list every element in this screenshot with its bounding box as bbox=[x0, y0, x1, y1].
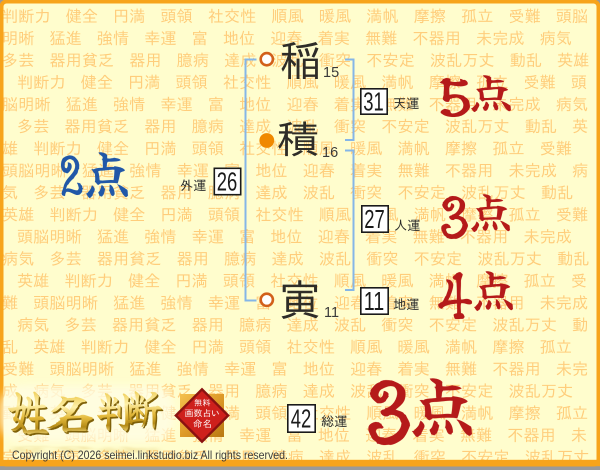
svg-text:27: 27 bbox=[364, 206, 385, 234]
svg-text:42: 42 bbox=[291, 406, 312, 434]
svg-text:26: 26 bbox=[217, 169, 238, 197]
svg-text:15: 15 bbox=[323, 65, 339, 81]
svg-text:31: 31 bbox=[363, 89, 384, 117]
svg-text:16: 16 bbox=[322, 145, 338, 161]
svg-text:Copyright (C) 2026 seimei.link: Copyright (C) 2026 seimei.linkstudio.biz… bbox=[12, 448, 288, 462]
svg-text:11: 11 bbox=[324, 305, 339, 321]
svg-text:11: 11 bbox=[364, 288, 385, 316]
